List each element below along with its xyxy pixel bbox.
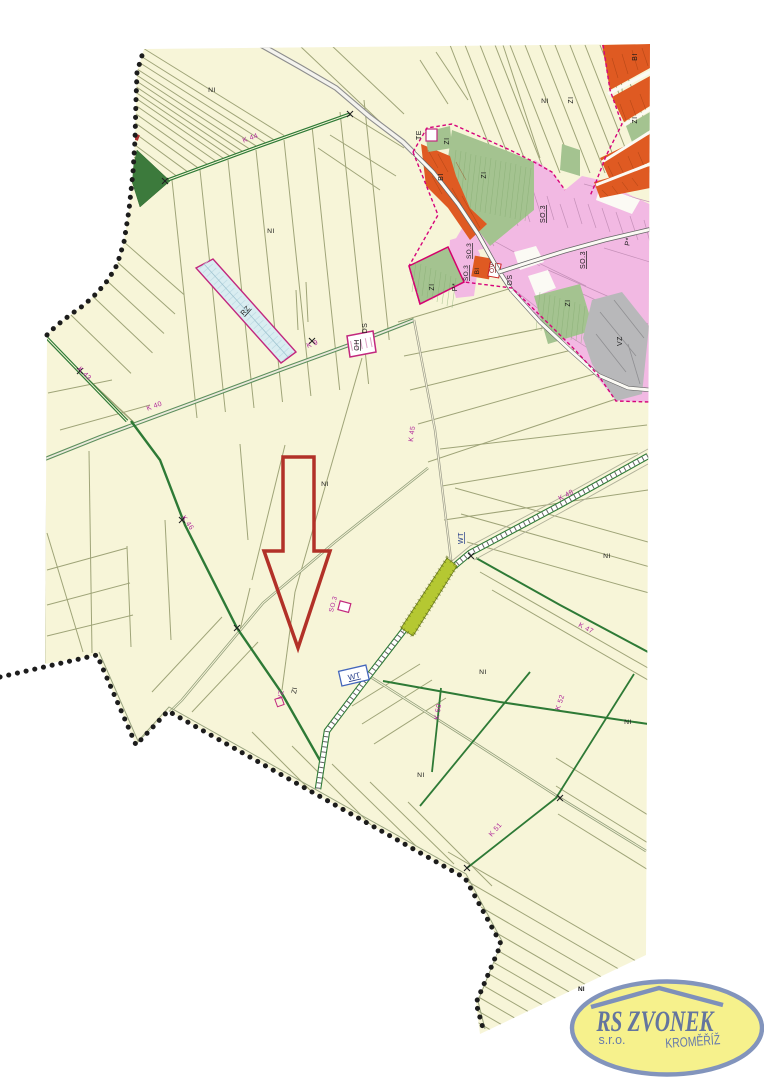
svg-text:NI: NI	[624, 719, 632, 726]
svg-text:NI: NI	[267, 228, 275, 235]
svg-text:NI: NI	[479, 669, 487, 676]
svg-text:BI: BI	[474, 268, 481, 275]
svg-text:BI: BI	[438, 173, 445, 181]
svg-text:OS: OS	[507, 274, 514, 285]
svg-text:ZI: ZI	[429, 283, 436, 290]
svg-text:NI: NI	[321, 481, 329, 488]
svg-text:SO.3: SO.3	[466, 243, 473, 259]
svg-text:BI: BI	[632, 53, 639, 61]
svg-text:ZI: ZI	[444, 137, 451, 144]
svg-text:NI: NI	[208, 87, 216, 94]
svg-text:SO.3: SO.3	[463, 265, 470, 281]
svg-text:DS: DS	[362, 323, 369, 334]
svg-text:ZI: ZI	[291, 687, 299, 694]
svg-text:SO.3: SO.3	[580, 251, 587, 269]
svg-text:NI: NI	[578, 986, 585, 993]
svg-text:TE: TE	[416, 130, 423, 140]
svg-text:OV: OV	[489, 263, 496, 273]
svg-text:s.r.o.: s.r.o.	[599, 1032, 626, 1047]
svg-text:ZI: ZI	[568, 96, 575, 103]
svg-text:NI: NI	[417, 772, 425, 779]
svg-text:WT: WT	[458, 532, 465, 544]
svg-text:NI: NI	[603, 553, 611, 560]
svg-text:ZI: ZI	[632, 116, 639, 123]
svg-text:ZI: ZI	[481, 171, 488, 178]
svg-text:SO.3: SO.3	[540, 205, 547, 223]
svg-text:OH: OH	[354, 339, 361, 351]
svg-text:P*: P*	[452, 283, 459, 291]
svg-text:NI: NI	[541, 98, 549, 105]
svg-text:P*: P*	[624, 237, 632, 246]
svg-text:ZI: ZI	[565, 299, 572, 306]
svg-text:VZ: VZ	[617, 336, 624, 346]
